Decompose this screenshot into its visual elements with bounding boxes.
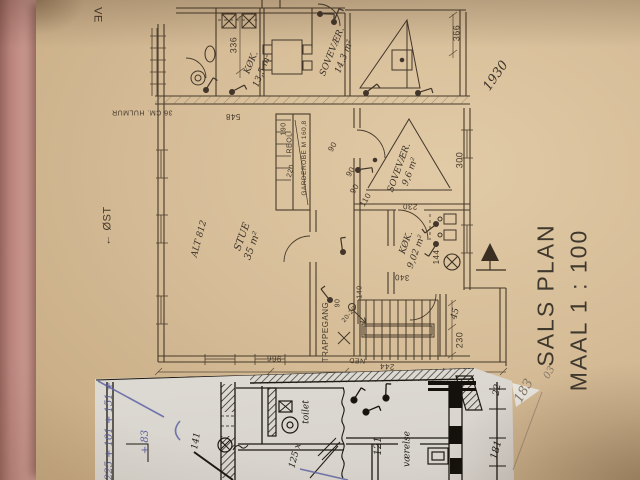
label-note-121: 121 [374, 436, 384, 455]
scrap-labels-layer: 225 + 101 + 151 ++ 83141toilet125 xværel… [0, 0, 640, 480]
label-dim-141: 141 [191, 432, 203, 450]
photo-of-floor-plan: VE336KØK.13,5 m²SOVEVÆR.14,3 m²366193036… [0, 0, 640, 480]
label-calc-83: + 83 [141, 430, 151, 454]
label-note-183: 183 [512, 377, 536, 405]
label-label-toilet: toilet [303, 400, 312, 424]
label-calc-sum: 225 + 101 + 151 + [105, 382, 115, 480]
label-dim-22: 22 [493, 384, 504, 397]
label-dim-181: 181 [490, 439, 505, 460]
label-note-03: 03 [542, 365, 557, 381]
label-label-vaerelse: værelse [404, 431, 413, 467]
label-note-125: 125 x [288, 443, 303, 470]
